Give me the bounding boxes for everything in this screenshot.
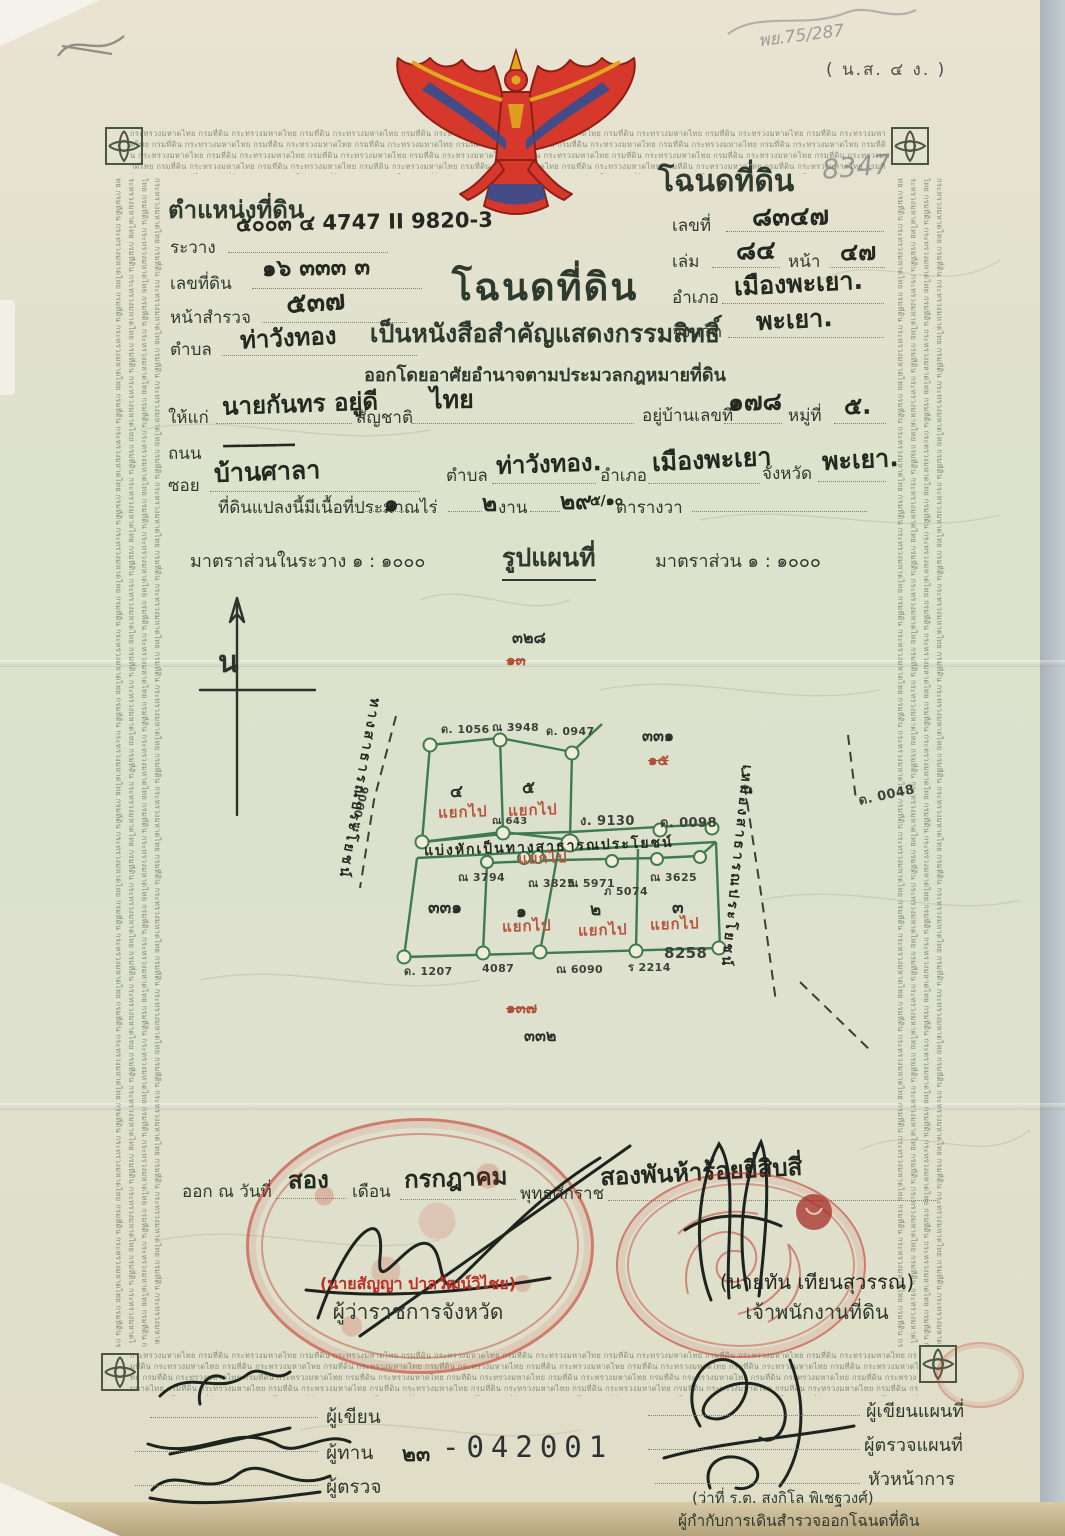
map-marker-label: ง. 9130 bbox=[580, 810, 635, 831]
rawang-label: ระวาง bbox=[170, 234, 216, 261]
corner-rosette-bl bbox=[100, 1352, 140, 1392]
governor-title: ผู้ว่าราชการจังหวัด bbox=[288, 1296, 548, 1329]
changwat2-value: พะเยา. bbox=[821, 438, 900, 482]
sheet-ref-old: ๑๓ bbox=[506, 648, 526, 672]
corner-rosette-tr bbox=[890, 126, 930, 166]
soi-value: บ้านศาลา bbox=[213, 450, 321, 494]
reader-line bbox=[135, 1450, 318, 1452]
map-writer-line bbox=[648, 1414, 860, 1416]
area-ngan-value: ๒ bbox=[482, 486, 498, 522]
road-label: ถนน bbox=[168, 440, 202, 467]
form-code: ( น.ส. ๔ ง. ) bbox=[826, 56, 946, 83]
area-rai-unit: ไร่ bbox=[420, 494, 438, 521]
amphoe2-value: เมืองพะเยา bbox=[651, 437, 772, 483]
map-marker-label: ด. 0947 bbox=[546, 722, 595, 740]
nationality-line bbox=[412, 422, 634, 424]
area-ngan-unit: งาน bbox=[498, 494, 527, 521]
pencil-scribble bbox=[52, 24, 132, 66]
inspector-label: ผู้ตรวจ bbox=[326, 1472, 381, 1502]
map-officer-signatures bbox=[640, 1330, 900, 1495]
split-note: แยกไป bbox=[578, 917, 628, 943]
amphoe2-label: อำเภอ bbox=[600, 462, 647, 489]
split-note: แยกไป bbox=[438, 799, 488, 825]
changwat2-label: จังหวัด bbox=[762, 460, 812, 487]
area-tail-line bbox=[692, 510, 867, 512]
sheet-ref-old: ๑๓๗ bbox=[506, 996, 537, 1020]
garuda-emblem bbox=[378, 48, 654, 226]
writer-line bbox=[150, 1416, 318, 1418]
map-marker-label: ณ 3625 bbox=[650, 868, 697, 886]
writer-label: ผู้เขียน bbox=[326, 1402, 381, 1432]
north-arrow: น bbox=[190, 590, 360, 825]
tambon2-label: ตำบล bbox=[446, 462, 488, 489]
map-marker-label: 8258 bbox=[664, 944, 707, 962]
border-left: กระทรวงมหาดไทย กรมที่ดิน กระทรวงมหาดไทย … bbox=[112, 178, 164, 1348]
corner-rosette-tl bbox=[104, 126, 144, 166]
doc-number-thai: ๒๓ bbox=[402, 1438, 431, 1471]
rawang-value: ๕๐๐๓ ๔ 4747 II 9820-3 bbox=[236, 204, 493, 241]
area-wa-unit: ตารางวา bbox=[616, 494, 683, 521]
tambon-label: ตำบล bbox=[170, 336, 212, 363]
inspector-line bbox=[135, 1484, 318, 1486]
house-no-label: อยู่บ้านเลขที่ bbox=[642, 402, 733, 429]
map-writer-label: ผู้เขียนแผนที่ bbox=[866, 1396, 964, 1425]
map-marker-label: 4087 bbox=[482, 962, 514, 975]
tambon2-value: ท่าวังทอง. bbox=[495, 442, 602, 485]
map-marker-label: ณ 3948 bbox=[492, 718, 539, 736]
changwat2-line bbox=[818, 480, 886, 482]
map-title: รูปแผนที่ bbox=[502, 538, 596, 581]
scale-map: มาตราส่วน ๑ : ๑๐๐๐ bbox=[655, 546, 821, 575]
parcel-number: ๕ bbox=[522, 774, 535, 801]
area-wa-line bbox=[530, 510, 560, 512]
scale-in-rawang: มาตราส่วนในระวาง ๑ : ๑๐๐๐ bbox=[190, 546, 425, 575]
map-inspector-line bbox=[648, 1448, 860, 1450]
main-subtitle: เป็นหนังสือสำคัญแสดงกรรมสิทธิ์ bbox=[280, 314, 810, 354]
chief-label: หัวหน้าการ bbox=[868, 1464, 955, 1493]
map-marker-label: ภ 5074 bbox=[604, 882, 648, 900]
governor-stamp-name: (นายสัญญา ปาลวัฒน์วิไชย) bbox=[268, 1272, 568, 1297]
survey-chief-title: ผู้กำกับการเดินสำรวจออกโฉนดที่ดิน bbox=[678, 1508, 919, 1533]
land-deed-document: กระทรวงมหาดไทย กรมที่ดิน กระทรวงมหาดไทย … bbox=[0, 0, 1065, 1536]
moo-label: หมู่ที่ bbox=[788, 402, 822, 429]
sheet-ref-old: ๑๕ bbox=[648, 748, 669, 772]
to-label: ให้แก่ bbox=[168, 404, 209, 431]
moo-value: ๕. bbox=[844, 386, 872, 425]
parcel-no-label: เลขที่ดิน bbox=[170, 270, 232, 297]
area-rai-value: ๑ bbox=[384, 486, 399, 522]
map-inspector-label: ผู้ตรวจแผนที่ bbox=[864, 1430, 963, 1459]
compass-n-label: น bbox=[218, 645, 239, 680]
split-note: แยกไป bbox=[502, 913, 552, 939]
amphoe2-line bbox=[648, 482, 760, 484]
doc-number-digits: -042001 bbox=[442, 1430, 613, 1464]
chief-line bbox=[655, 1482, 860, 1484]
area-wa-value: ๒๙ bbox=[560, 484, 593, 521]
area-rai-line bbox=[352, 510, 414, 512]
sheet-ref: ๓๓๑ bbox=[642, 724, 674, 749]
map-marker-label: ด. 0098 bbox=[660, 812, 717, 833]
survey-chief-name: (ว่าที่ ร.ต. สงกิโล พิเชฐวงศ์) bbox=[692, 1486, 874, 1510]
split-note: แยกไป bbox=[650, 911, 700, 937]
land-officer-title: เจ้าพนักงานที่ดิน bbox=[672, 1296, 962, 1328]
main-title: โฉนดที่ดิน bbox=[290, 256, 800, 317]
area-ngan-line bbox=[448, 510, 482, 512]
nationality-label: สัญชาติ bbox=[356, 404, 413, 431]
pencil-deed-number: 8347 bbox=[821, 149, 892, 186]
map-marker-label: ณ 3794 bbox=[458, 868, 505, 886]
sheet-ref: ๓๓๒ bbox=[524, 1024, 556, 1049]
split-note: แยกไป bbox=[508, 797, 558, 823]
map-marker-label: ณ 6090 bbox=[556, 960, 603, 978]
map-marker-label: ด. 1207 bbox=[404, 962, 453, 980]
land-officer-stamp-name: (นายทัน เทียนสุวรรณ) bbox=[672, 1266, 962, 1298]
deed-no-label: เลขที่ bbox=[672, 212, 711, 239]
reader-label: ผู้ทาน bbox=[326, 1438, 373, 1468]
house-no-value: ๑๗๘ bbox=[728, 382, 783, 423]
parcel-number: ๓๓๑ bbox=[428, 894, 462, 921]
soi-label: ซอย bbox=[168, 472, 200, 499]
border-right: กระทรวงมหาดไทย กรมที่ดิน กระทรวงมหาดไทย … bbox=[894, 178, 946, 1348]
nationality-value: ไทย bbox=[430, 380, 474, 421]
map-marker-label: ด. 1056 bbox=[441, 720, 490, 738]
